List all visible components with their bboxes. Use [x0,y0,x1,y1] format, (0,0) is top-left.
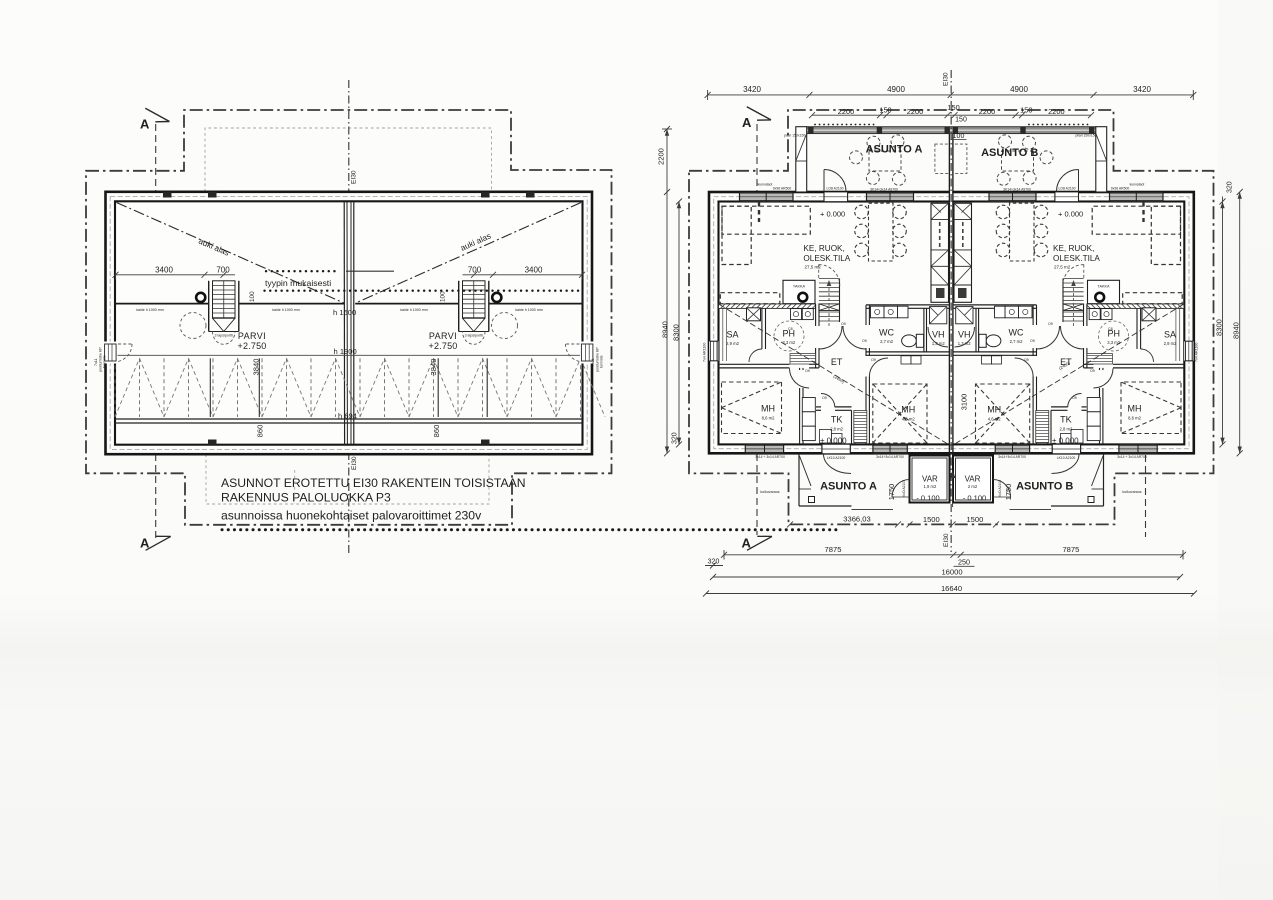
svg-text:ASUNTO A: ASUNTO A [866,144,923,156]
svg-text:1500: 1500 [923,515,940,524]
svg-text:860: 860 [432,425,441,438]
svg-text:4,6 m2: 4,6 m2 [902,417,915,422]
svg-text:320: 320 [672,432,679,444]
svg-text:asunnoissa huonekohtaiset palo: asunnoissa huonekohtaiset palovaroittime… [221,509,482,523]
svg-text:3K14+3x14 A9700: 3K14+3x14 A9700 [1003,188,1031,192]
svg-text:A: A [742,115,752,130]
svg-text:860: 860 [256,425,265,438]
svg-text:A: A [140,117,150,132]
svg-text:16000: 16000 [941,567,962,576]
svg-text:7875: 7875 [825,545,842,554]
svg-text:2 m2: 2 m2 [968,484,978,489]
svg-text:2,9 m2: 2,9 m2 [1164,341,1177,346]
svg-text:kaide h 1000 mm: kaide h 1000 mm [515,308,543,312]
svg-text:3100: 3100 [960,394,969,410]
svg-text:8,6 m2: 8,6 m2 [1128,416,1141,421]
svg-text:EI30: EI30 [943,72,950,86]
svg-text:O9: O9 [1048,322,1053,326]
svg-text:150: 150 [879,106,891,115]
svg-text:O9: O9 [805,369,810,373]
svg-text:- 0.100: - 0.100 [963,494,986,503]
svg-text:+2.750: +2.750 [238,341,267,351]
svg-text:150: 150 [1020,106,1032,115]
svg-text:150: 150 [955,117,967,124]
svg-text:3,3 m2: 3,3 m2 [1107,340,1120,345]
svg-text:100: 100 [249,291,256,302]
svg-text:3x14+3x14 AR700: 3x14+3x14 AR700 [998,455,1026,459]
svg-text:ET: ET [831,357,843,367]
svg-text:8300: 8300 [1215,319,1224,336]
svg-text:ASUNTO B: ASUNTO B [1016,480,1073,492]
svg-text:3x14 + 3x14 AR700: 3x14 + 3x14 AR700 [755,455,785,459]
svg-text:± 0.000: ± 0.000 [1052,437,1079,446]
svg-text:kunvataot: kunvataot [758,183,773,187]
svg-text:3366,03: 3366,03 [843,515,870,524]
svg-text:ASUNTO B: ASUNTO B [981,147,1038,159]
svg-text:2,7 m2: 2,7 m2 [880,339,893,344]
svg-text:LO8 A2100: LO8 A2100 [827,187,844,191]
svg-text:OLESK.TILA: OLESK.TILA [1053,254,1100,263]
svg-text:MH: MH [901,405,915,415]
svg-text:3420: 3420 [743,85,761,94]
svg-text:3 lapsiportti: 3 lapsiportti [465,334,484,338]
svg-text:PARVI: PARVI [238,331,266,341]
svg-text:VH: VH [958,330,971,340]
svg-text:+ 0.000: + 0.000 [1058,210,1083,219]
svg-text:MH: MH [761,404,775,414]
svg-text:3400: 3400 [155,265,173,274]
svg-text:1750: 1750 [1004,484,1013,500]
svg-text:7x4 AR1100: 7x4 AR1100 [703,343,707,362]
svg-text:ASUNNOT EROTETTU EI30 RAKENTEI: ASUNNOT EROTETTU EI30 RAKENTEIN TOISISTA… [221,476,526,490]
svg-text:kaide h 1000 mm: kaide h 1000 mm [400,308,428,312]
svg-text:700: 700 [216,265,230,274]
svg-text:LK10 A2100: LK10 A2100 [827,456,846,460]
svg-text:O9: O9 [1030,339,1035,343]
svg-text:1500: 1500 [966,515,983,524]
svg-text:7x4 AR1100: 7x4 AR1100 [1195,343,1199,362]
svg-text:TAKKA: TAKKA [793,285,806,289]
svg-text:ASUNTO A: ASUNTO A [820,480,877,492]
svg-text:27,5 m2: 27,5 m2 [805,265,822,270]
svg-text:2,8 m2: 2,8 m2 [1059,427,1072,432]
svg-text:2200: 2200 [838,107,854,116]
svg-text:4,6 m2: 4,6 m2 [988,417,1001,422]
svg-text:h 1900: h 1900 [334,347,357,356]
svg-text:3 lapsiportti: 3 lapsiportti [215,334,234,338]
svg-text:3x14 + 3x14 AR700: 3x14 + 3x14 AR700 [1117,455,1147,459]
svg-text:EI30: EI30 [351,170,358,184]
svg-text:MH: MH [987,405,1001,415]
svg-text:WC: WC [879,328,894,338]
svg-text:tunniste: tunniste [103,355,107,368]
svg-text:PARVI: PARVI [429,331,457,341]
svg-text:MH: MH [1128,404,1142,414]
svg-text:VH: VH [932,330,945,340]
svg-text:3x14+3x14 AR700: 3x14+3x14 AR700 [876,455,904,459]
svg-text:h 1600: h 1600 [333,308,356,317]
svg-text:250: 250 [958,558,970,567]
svg-text:2,8 m2: 2,8 m2 [830,427,843,432]
svg-text:O9: O9 [871,358,876,362]
svg-text:3840: 3840 [252,359,261,376]
svg-text:± 0.000: ± 0.000 [820,437,847,446]
svg-text:h 694: h 694 [338,412,357,421]
svg-text:2,7 m2: 2,7 m2 [1010,339,1023,344]
svg-text:SA: SA [726,330,738,340]
svg-text:pilari 150x150: pilari 150x150 [1075,134,1096,138]
svg-text:3,3 m2: 3,3 m2 [782,340,795,345]
svg-text:WC: WC [1009,328,1024,338]
svg-text:8300: 8300 [672,324,681,341]
svg-text:2200: 2200 [1048,107,1064,116]
svg-text:A: A [140,536,150,551]
svg-text:8,6 m2: 8,6 m2 [762,416,775,421]
svg-text:27,5 m2: 27,5 m2 [1054,265,1071,270]
svg-text:C8: C8 [788,327,793,331]
svg-text:2200: 2200 [657,148,666,165]
svg-text:tyypin mukaisesti: tyypin mukaisesti [265,278,331,288]
svg-text:kulkuvaraus: kulkuvaraus [1122,490,1141,494]
svg-text:A: A [742,536,752,551]
svg-text:tunniste: tunniste [600,355,604,368]
svg-text:1,9 m2: 1,9 m2 [923,484,936,489]
svg-text:kaide h 1000 mm: kaide h 1000 mm [136,308,164,312]
svg-text:pilari 150x150: pilari 150x150 [784,134,805,138]
svg-text:2200: 2200 [907,107,923,116]
svg-text:100: 100 [440,291,447,302]
svg-text:KE, RUOK,: KE, RUOK, [1053,244,1094,253]
svg-text:VxO A2100: VxO A2100 [902,480,906,497]
svg-text:3420: 3420 [1133,85,1151,94]
svg-text:LK10 A2100: LK10 A2100 [1057,456,1076,460]
svg-text:3840: 3840 [429,359,438,376]
svg-text:2,9 m2: 2,9 m2 [726,341,739,346]
svg-text:7875: 7875 [1062,545,1079,554]
svg-text:EI30: EI30 [943,533,950,547]
svg-text:VxO A2100: VxO A2100 [998,480,1002,497]
svg-text:O9: O9 [862,339,867,343]
svg-text:3400: 3400 [525,265,543,274]
svg-text:TK: TK [831,415,843,425]
svg-text:2200: 2200 [979,107,995,116]
svg-text:O9: O9 [822,396,827,400]
svg-text:+ 0.000: + 0.000 [820,210,845,219]
svg-text:O9: O9 [1090,369,1095,373]
svg-text:kaide h 1000 mm: kaide h 1000 mm [272,308,300,312]
svg-text:TAKKA: TAKKA [1097,285,1110,289]
svg-text:4900: 4900 [887,85,905,94]
svg-text:KE, RUOK,: KE, RUOK, [803,244,844,253]
svg-text:- 0.100: - 0.100 [916,494,939,503]
svg-text:TK: TK [1060,415,1072,425]
svg-text:LO8 A2100: LO8 A2100 [1059,187,1076,191]
svg-text:1750: 1750 [887,484,896,500]
svg-text:8940: 8940 [1232,322,1241,339]
svg-text:VAR: VAR [965,475,981,484]
svg-text:4900: 4900 [1010,85,1028,94]
svg-text:16640: 16640 [941,584,962,593]
svg-text:O9: O9 [1024,358,1029,362]
svg-text:9x96 AR500: 9x96 AR500 [773,187,792,191]
svg-text:kunvataot: kunvataot [1130,183,1145,187]
svg-text:7x11: 7x11 [94,358,98,366]
svg-text:O9: O9 [841,322,846,326]
svg-text:+2.750: +2.750 [429,341,458,351]
svg-text:O9: O9 [1072,396,1077,400]
svg-text:OLESK.TILA: OLESK.TILA [803,254,850,263]
svg-text:VAR: VAR [922,475,938,484]
svg-text:RAKENNUS PALOLUOKKA P3: RAKENNUS PALOLUOKKA P3 [221,491,391,505]
svg-text:700: 700 [468,265,482,274]
svg-text:C8: C8 [1108,327,1113,331]
svg-text:320: 320 [1227,181,1234,193]
svg-text:320: 320 [708,559,720,566]
svg-text:EI30: EI30 [351,456,358,470]
svg-text:150: 150 [947,103,959,112]
svg-text:7x11: 7x11 [591,358,595,366]
svg-text:8940: 8940 [661,321,670,338]
svg-text:1,3 m2: 1,3 m2 [932,341,945,346]
svg-text:3K14+3x14 A9700: 3K14+3x14 A9700 [870,188,898,192]
svg-text:100: 100 [953,133,965,140]
svg-text:kulkuvaraus: kulkuvaraus [760,490,779,494]
svg-text:1,3 m2: 1,3 m2 [958,341,971,346]
svg-text:SA: SA [1164,330,1176,340]
svg-text:9x96 AR500: 9x96 AR500 [1111,187,1130,191]
